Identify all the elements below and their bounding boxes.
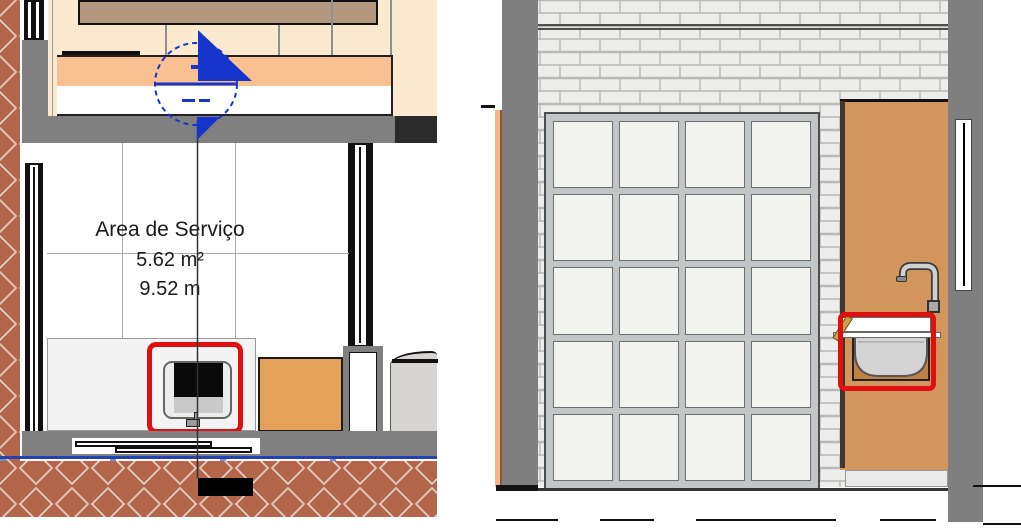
tank-selection-highlight-elevation[interactable] (838, 312, 936, 391)
level-line-right-lower (983, 523, 1021, 525)
ground-dash (696, 519, 836, 521)
section-marker[interactable] (155, 30, 252, 140)
level-line-right-upper (973, 485, 1021, 487)
floor-plan-view[interactable]: Area de Serviço 5.62 m² 9.52 m (0, 0, 440, 530)
window-sill-line (538, 488, 948, 491)
cad-drawing-canvas: Area de Serviço 5.62 m² 9.52 m (0, 0, 1021, 530)
section-arrow-main (198, 30, 252, 81)
window-section-right (955, 119, 972, 291)
tank-elevation-layer (480, 0, 1021, 522)
faucet[interactable] (903, 266, 935, 300)
section-arrow-tail (197, 117, 220, 140)
faucet-spout-tip (896, 276, 907, 282)
elevation-view[interactable] (480, 0, 1021, 530)
ground-dash (600, 519, 654, 521)
section-marker-layer (0, 0, 440, 522)
ground-dash (880, 519, 936, 521)
ground-dash (496, 519, 558, 521)
wall-base-cap (496, 485, 538, 491)
window-glass-line (963, 123, 965, 286)
